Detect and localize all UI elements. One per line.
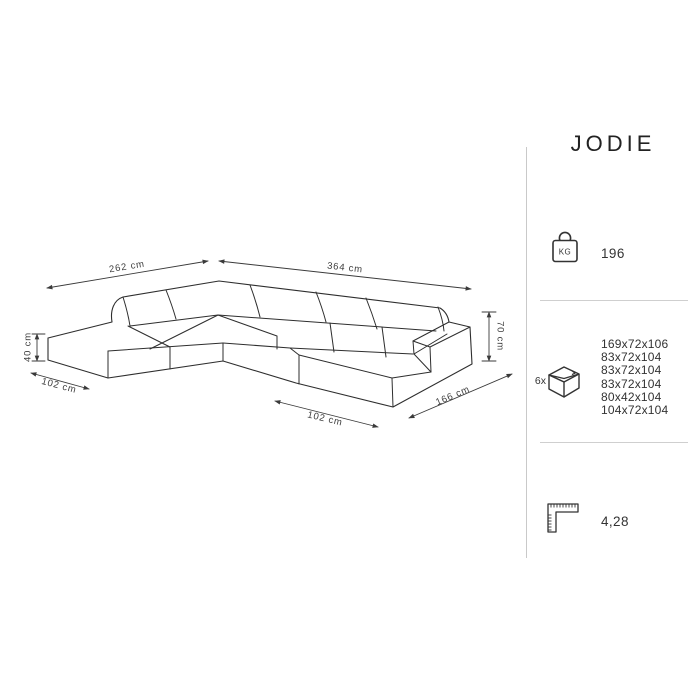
box-dimension-item: 83x72x104 [601,378,668,391]
volume-value: 4,28 [601,514,629,529]
product-spec-sheet: 262 cm 364 cm 40 cm 102 cm 102 cm 166 cm… [0,0,700,700]
box-dimension-item: 83x72x104 [601,364,668,377]
sidebar-divider [526,147,527,558]
weight-value: 196 [601,246,625,261]
box-dimensions-list: 169x72x106 83x72x104 83x72x104 83x72x104… [601,338,668,417]
weight-kg-icon: KG [551,229,579,264]
dim-label-total-height: 70 cm [495,321,506,351]
box-count-label: 6x [522,375,546,387]
sofa-outline [48,281,472,407]
box-dimension-item: 104x72x104 [601,404,668,417]
dim-label-seat-height: 40 cm [23,332,34,362]
product-title: JODIE [527,131,699,157]
ruler-square-icon [547,503,579,533]
section-divider-2 [540,442,688,443]
box-icon [545,361,581,399]
kg-label: KG [559,248,572,257]
sofa-diagram [0,0,700,700]
section-divider-1 [540,300,688,301]
